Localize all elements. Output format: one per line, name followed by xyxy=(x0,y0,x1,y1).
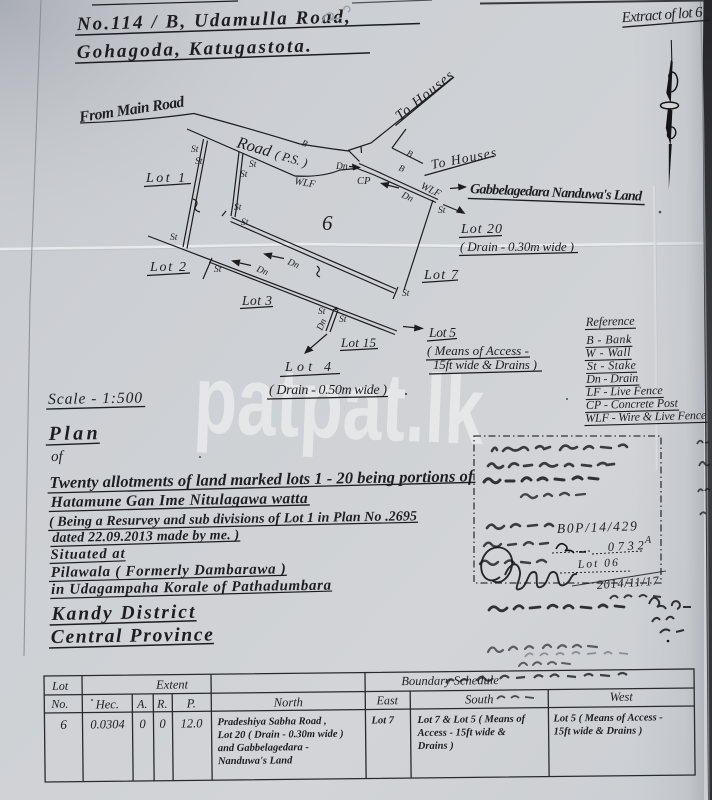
svg-text:St: St xyxy=(438,206,446,216)
svg-text:( Drain - 0.30m wide ): ( Drain - 0.30m wide ) xyxy=(460,239,574,254)
svg-text:A.: A. xyxy=(136,697,147,711)
svg-text:Nanduwa's Land: Nanduwa's Land xyxy=(217,755,293,767)
svg-text:St: St xyxy=(240,170,248,180)
svg-text:Lot 20 ( Drain - 0.30m wide ): Lot 20 ( Drain - 0.30m wide ) xyxy=(217,729,344,741)
svg-text:South: South xyxy=(465,692,494,706)
svg-text:15ft wide & Drains ): 15ft wide & Drains ) xyxy=(433,357,537,372)
svg-text:( Drain - 0.50m wide ): ( Drain - 0.50m wide ) xyxy=(269,383,387,398)
svg-text:of: of xyxy=(51,449,65,465)
svg-text:Lot 7: Lot 7 xyxy=(370,715,394,726)
svg-text:Drains ): Drains ) xyxy=(417,741,454,752)
svg-text:6: 6 xyxy=(60,717,67,732)
svg-text:Scale - 1:500: Scale - 1:500 xyxy=(48,390,143,408)
svg-text:( Means of Access -: ( Means of Access - xyxy=(427,343,529,358)
svg-text:St: St xyxy=(195,157,203,167)
svg-text:St: St xyxy=(402,289,410,299)
svg-text:Pradeshiya Sabha Road ,: Pradeshiya Sabha Road , xyxy=(217,716,326,728)
svg-text:0.0304: 0.0304 xyxy=(90,717,125,731)
svg-text:North: North xyxy=(273,695,303,709)
svg-text:CP: CP xyxy=(357,176,371,187)
svg-text:Lot 5: Lot 5 xyxy=(428,325,456,340)
svg-text:Lot 20: Lot 20 xyxy=(460,222,502,237)
svg-text:St: St xyxy=(318,307,326,317)
svg-text:and Gabbelagedara -: and Gabbelagedara - xyxy=(218,742,310,754)
svg-text:St: St xyxy=(339,315,347,325)
svg-text:P.: P. xyxy=(186,696,196,710)
svg-text:Lot 15: Lot 15 xyxy=(340,335,377,350)
svg-text:Lot 3: Lot 3 xyxy=(241,293,272,308)
svg-text:West: West xyxy=(610,690,634,704)
svg-text:Lot 5 ( Means of Access -: Lot 5 ( Means of Access - xyxy=(552,712,663,724)
svg-text:St: St xyxy=(214,265,222,275)
svg-text:Dn: Dn xyxy=(335,162,348,172)
svg-text:Access - 15ft wide &: Access - 15ft wide & xyxy=(417,727,507,739)
svg-text:Lot: Lot xyxy=(51,679,69,693)
svg-text:No.: No. xyxy=(50,697,68,711)
svg-text:R.: R. xyxy=(156,697,167,711)
svg-text:St: St xyxy=(170,233,178,243)
svg-text:12.0: 12.0 xyxy=(181,716,204,730)
svg-text:0: 0 xyxy=(139,717,146,731)
svg-text:Boundary Schedule: Boundary Schedule xyxy=(401,673,499,688)
svg-text:0: 0 xyxy=(159,717,166,731)
svg-text:6: 6 xyxy=(322,211,333,235)
svg-text:St: St xyxy=(191,145,199,155)
svg-text:Plan: Plan xyxy=(47,422,97,445)
svg-text:15ft wide & Drains ): 15ft wide & Drains ) xyxy=(554,726,643,738)
svg-text:Reference: Reference xyxy=(585,314,636,329)
svg-text:A: A xyxy=(644,535,652,546)
svg-text:Lot 7 & Lot 5 ( Means of: Lot 7 & Lot 5 ( Means of xyxy=(416,714,526,726)
svg-text:B0P/14/429: B0P/14/429 xyxy=(557,518,638,536)
svg-text:St: St xyxy=(249,160,257,170)
svg-text:East: East xyxy=(376,693,399,707)
svg-text:Situated at: Situated at xyxy=(50,546,125,563)
svg-text:Extent: Extent xyxy=(155,677,189,691)
svg-text:St: St xyxy=(234,203,242,213)
svg-text:Hec.: Hec. xyxy=(95,697,119,711)
svg-text:Lot 2: Lot 2 xyxy=(149,260,186,275)
svg-text:Lot 4: Lot 4 xyxy=(284,360,331,375)
